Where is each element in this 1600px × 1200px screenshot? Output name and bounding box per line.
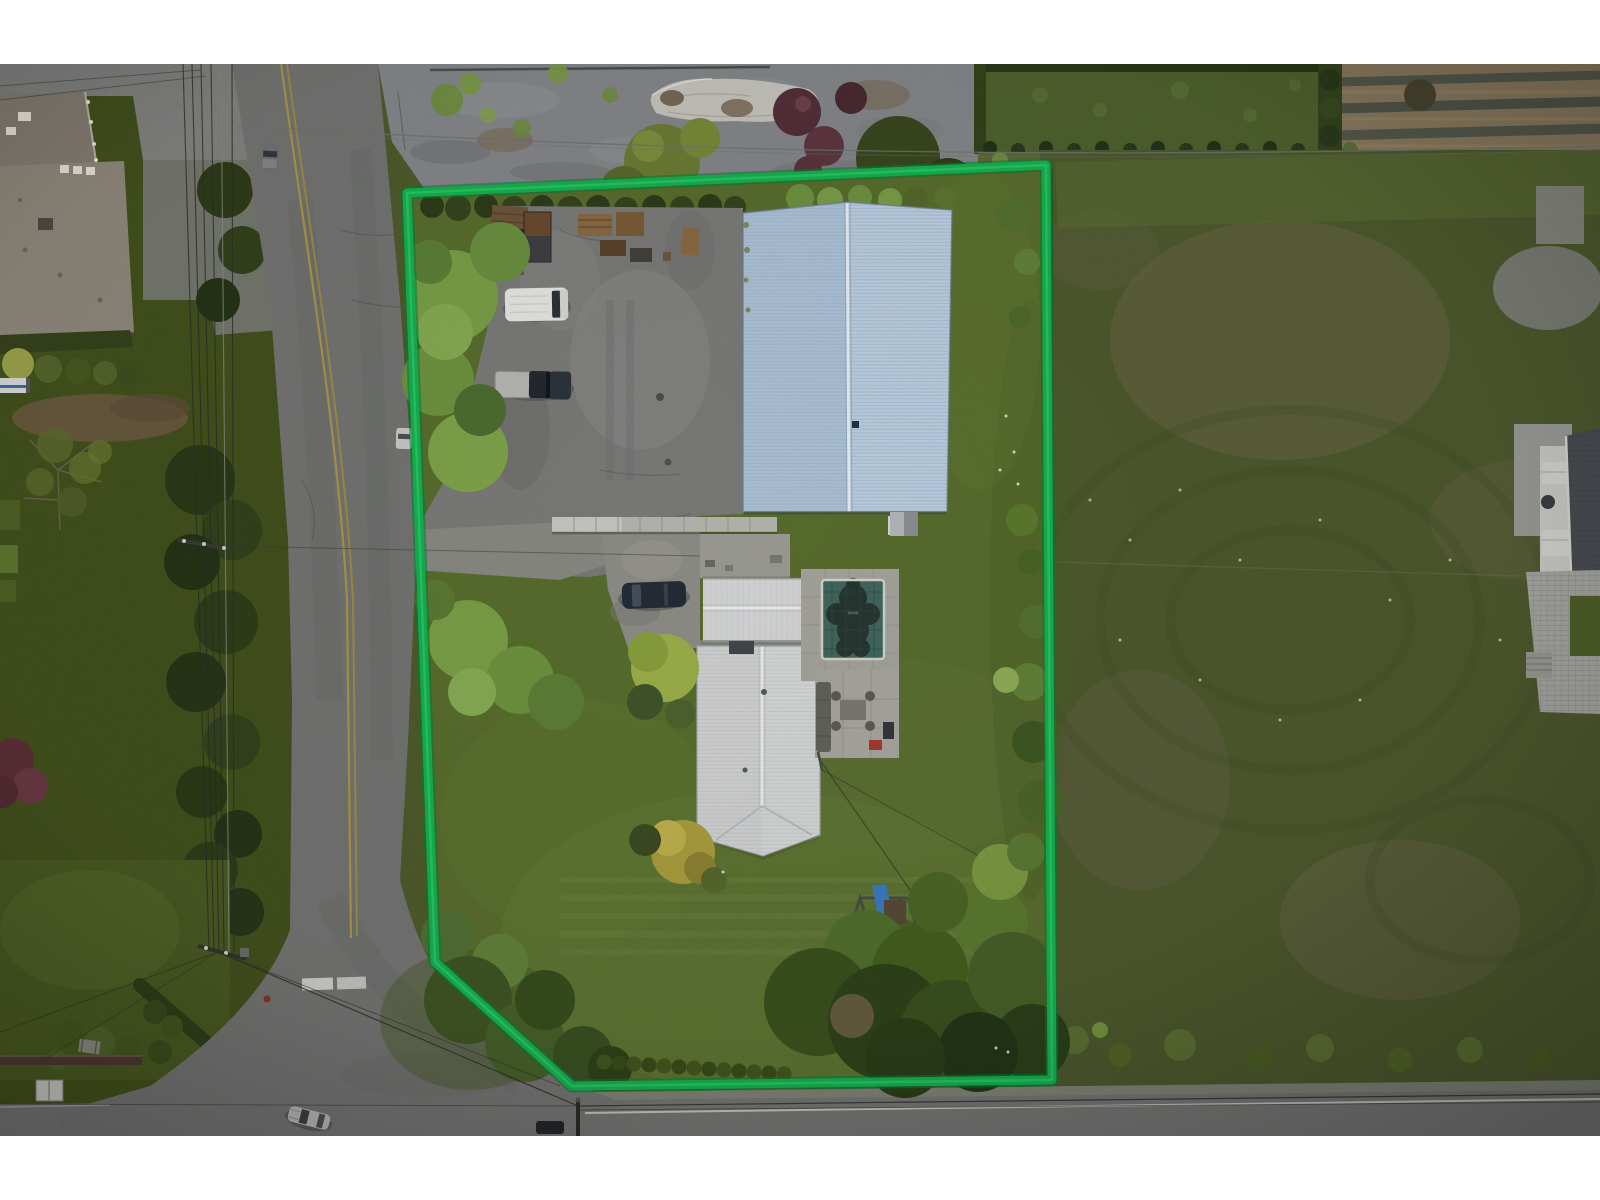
film-grain (0, 64, 1600, 1136)
letterbox-top (0, 0, 1600, 64)
aerial-photo (0, 0, 1600, 1200)
aerial-photo-page (0, 0, 1600, 1200)
letterbox-bottom (0, 1136, 1600, 1200)
photo-content (0, 63, 1600, 1136)
